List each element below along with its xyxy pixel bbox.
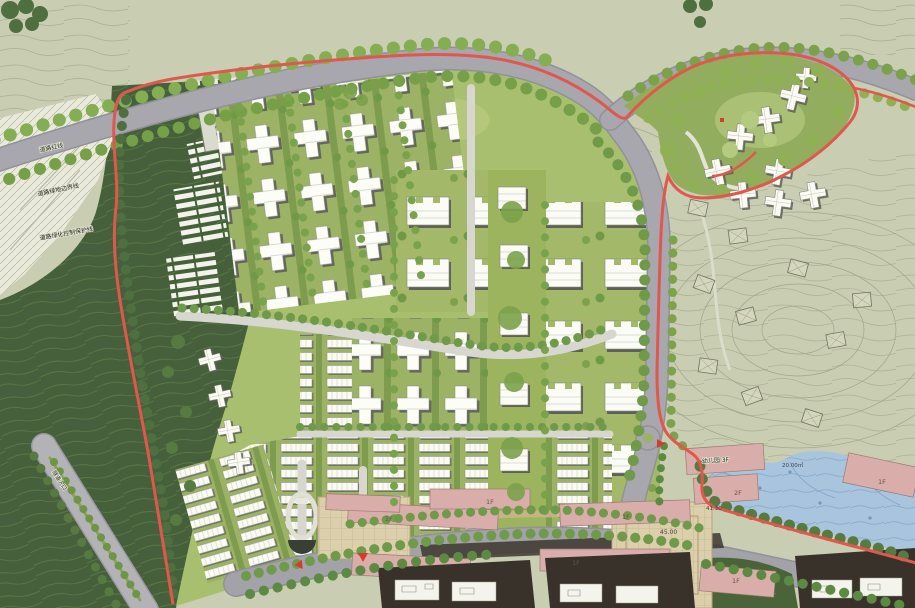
pond-area-label: 20.00㎡ bbox=[782, 461, 804, 469]
kindergarten-label: 幼儿园 3F bbox=[702, 456, 730, 465]
shop-label-3: 1F bbox=[622, 513, 630, 521]
plaza-elevation: 45.00 bbox=[660, 529, 677, 536]
rowhouses-west-strip bbox=[300, 334, 352, 436]
masterplan-image: 道路红线 道路绿地边界线 道路绿化控制保护线 隧道入口 幼儿园 3F 2F 45… bbox=[0, 0, 915, 608]
villa-area-marker bbox=[720, 118, 724, 122]
site-plan-svg: 道路红线 道路绿地边界线 道路绿化控制保护线 隧道入口 幼儿园 3F 2F 45… bbox=[0, 0, 915, 608]
shop-label-2: 1F bbox=[486, 498, 494, 506]
shop-label-4: 1F bbox=[572, 559, 580, 567]
floor-label-2f: 2F bbox=[734, 489, 742, 497]
shop-label-1: 1F bbox=[385, 515, 393, 523]
contours-ne bbox=[840, 0, 915, 55]
building-elevation: 41.30 bbox=[706, 506, 722, 512]
shop-label-6: 1F bbox=[878, 478, 886, 486]
shop-label-5: 1F bbox=[732, 577, 740, 585]
